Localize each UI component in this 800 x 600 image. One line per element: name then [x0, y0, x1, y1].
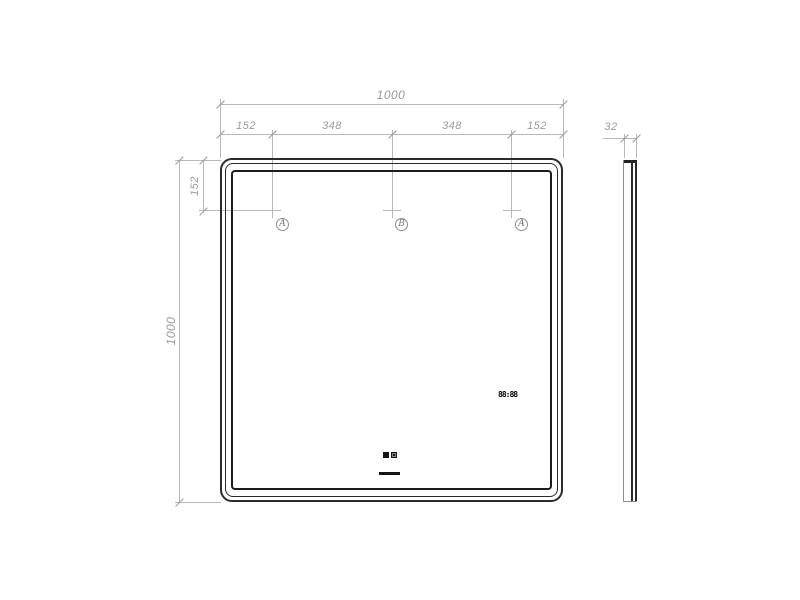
dim-label-overall-height: 1000	[165, 316, 179, 346]
side-view-bottom-edge	[623, 501, 637, 502]
touch-sensor-icon	[383, 452, 389, 458]
extension-line	[563, 99, 564, 158]
dim-label-depth: 32	[591, 121, 631, 134]
dim-label-segment-2: 348	[312, 120, 352, 133]
extension-line	[175, 502, 221, 503]
marker-b-center: B	[395, 218, 408, 231]
marker-a-right: A	[515, 218, 528, 231]
extension-line	[220, 99, 221, 158]
touch-sensor-icon	[391, 452, 397, 458]
dim-label-segment-1: 152	[226, 120, 266, 133]
dim-line-top-offset	[203, 160, 204, 211]
side-view-front-edge	[635, 161, 637, 502]
dim-line-overall-width	[220, 104, 564, 105]
dim-label-segment-4: 152	[517, 120, 557, 133]
dim-line-overall-height	[179, 160, 180, 502]
dim-label-segment-3: 348	[432, 120, 472, 133]
side-view-back-edge	[623, 160, 624, 502]
dim-label-top-offset: 152	[189, 171, 203, 201]
side-view-glass-line	[631, 161, 633, 502]
marker-a-left: A	[276, 218, 289, 231]
dim-line-depth	[603, 138, 637, 139]
technical-drawing-canvas: 1000 152 348 348 152 32 1000 152 A B A 8…	[0, 0, 800, 600]
dim-label-overall-width: 1000	[361, 89, 421, 102]
touch-slider-bar	[379, 472, 400, 475]
clock-display: 88:88	[498, 390, 517, 399]
extension-line	[175, 160, 221, 161]
